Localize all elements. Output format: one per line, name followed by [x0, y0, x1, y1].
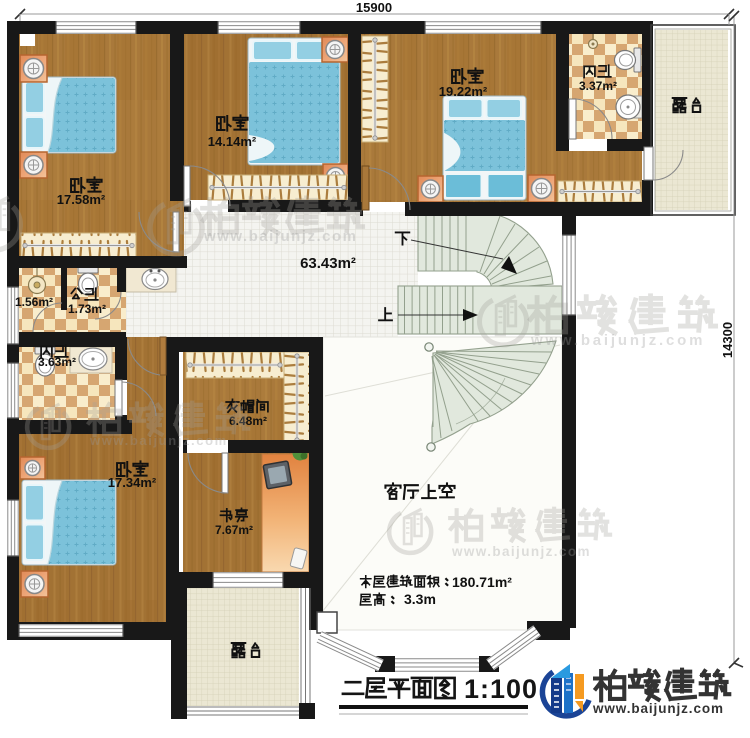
svg-text:15900: 15900 — [356, 0, 392, 15]
svg-text:14300: 14300 — [720, 322, 735, 358]
svg-text:1.56m²: 1.56m² — [15, 295, 53, 309]
svg-text:3.3m: 3.3m — [404, 591, 436, 607]
svg-text:www.baijunjz.com: www.baijunjz.com — [451, 544, 591, 559]
svg-text:63.43m²: 63.43m² — [300, 255, 356, 272]
svg-text:www.baijunjz.com: www.baijunjz.com — [203, 228, 357, 245]
svg-text:7.67m²: 7.67m² — [215, 523, 253, 537]
svg-text:3.37m²: 3.37m² — [579, 79, 617, 93]
svg-text:14.14m²: 14.14m² — [208, 134, 257, 149]
svg-text:1.73m²: 1.73m² — [68, 302, 106, 316]
svg-text:1:100: 1:100 — [464, 674, 538, 704]
svg-text:19.22m²: 19.22m² — [439, 84, 488, 99]
svg-text:17.58m²: 17.58m² — [57, 192, 106, 207]
svg-text:www.baijunjz.com: www.baijunjz.com — [592, 701, 724, 716]
svg-text:3.63m²: 3.63m² — [38, 355, 76, 369]
svg-text:180.71m²: 180.71m² — [452, 574, 512, 590]
svg-text:www.baijunjz.com: www.baijunjz.com — [530, 332, 705, 349]
svg-text:17.34m²: 17.34m² — [108, 475, 157, 490]
svg-text:www.baijunjz.com: www.baijunjz.com — [89, 433, 228, 448]
